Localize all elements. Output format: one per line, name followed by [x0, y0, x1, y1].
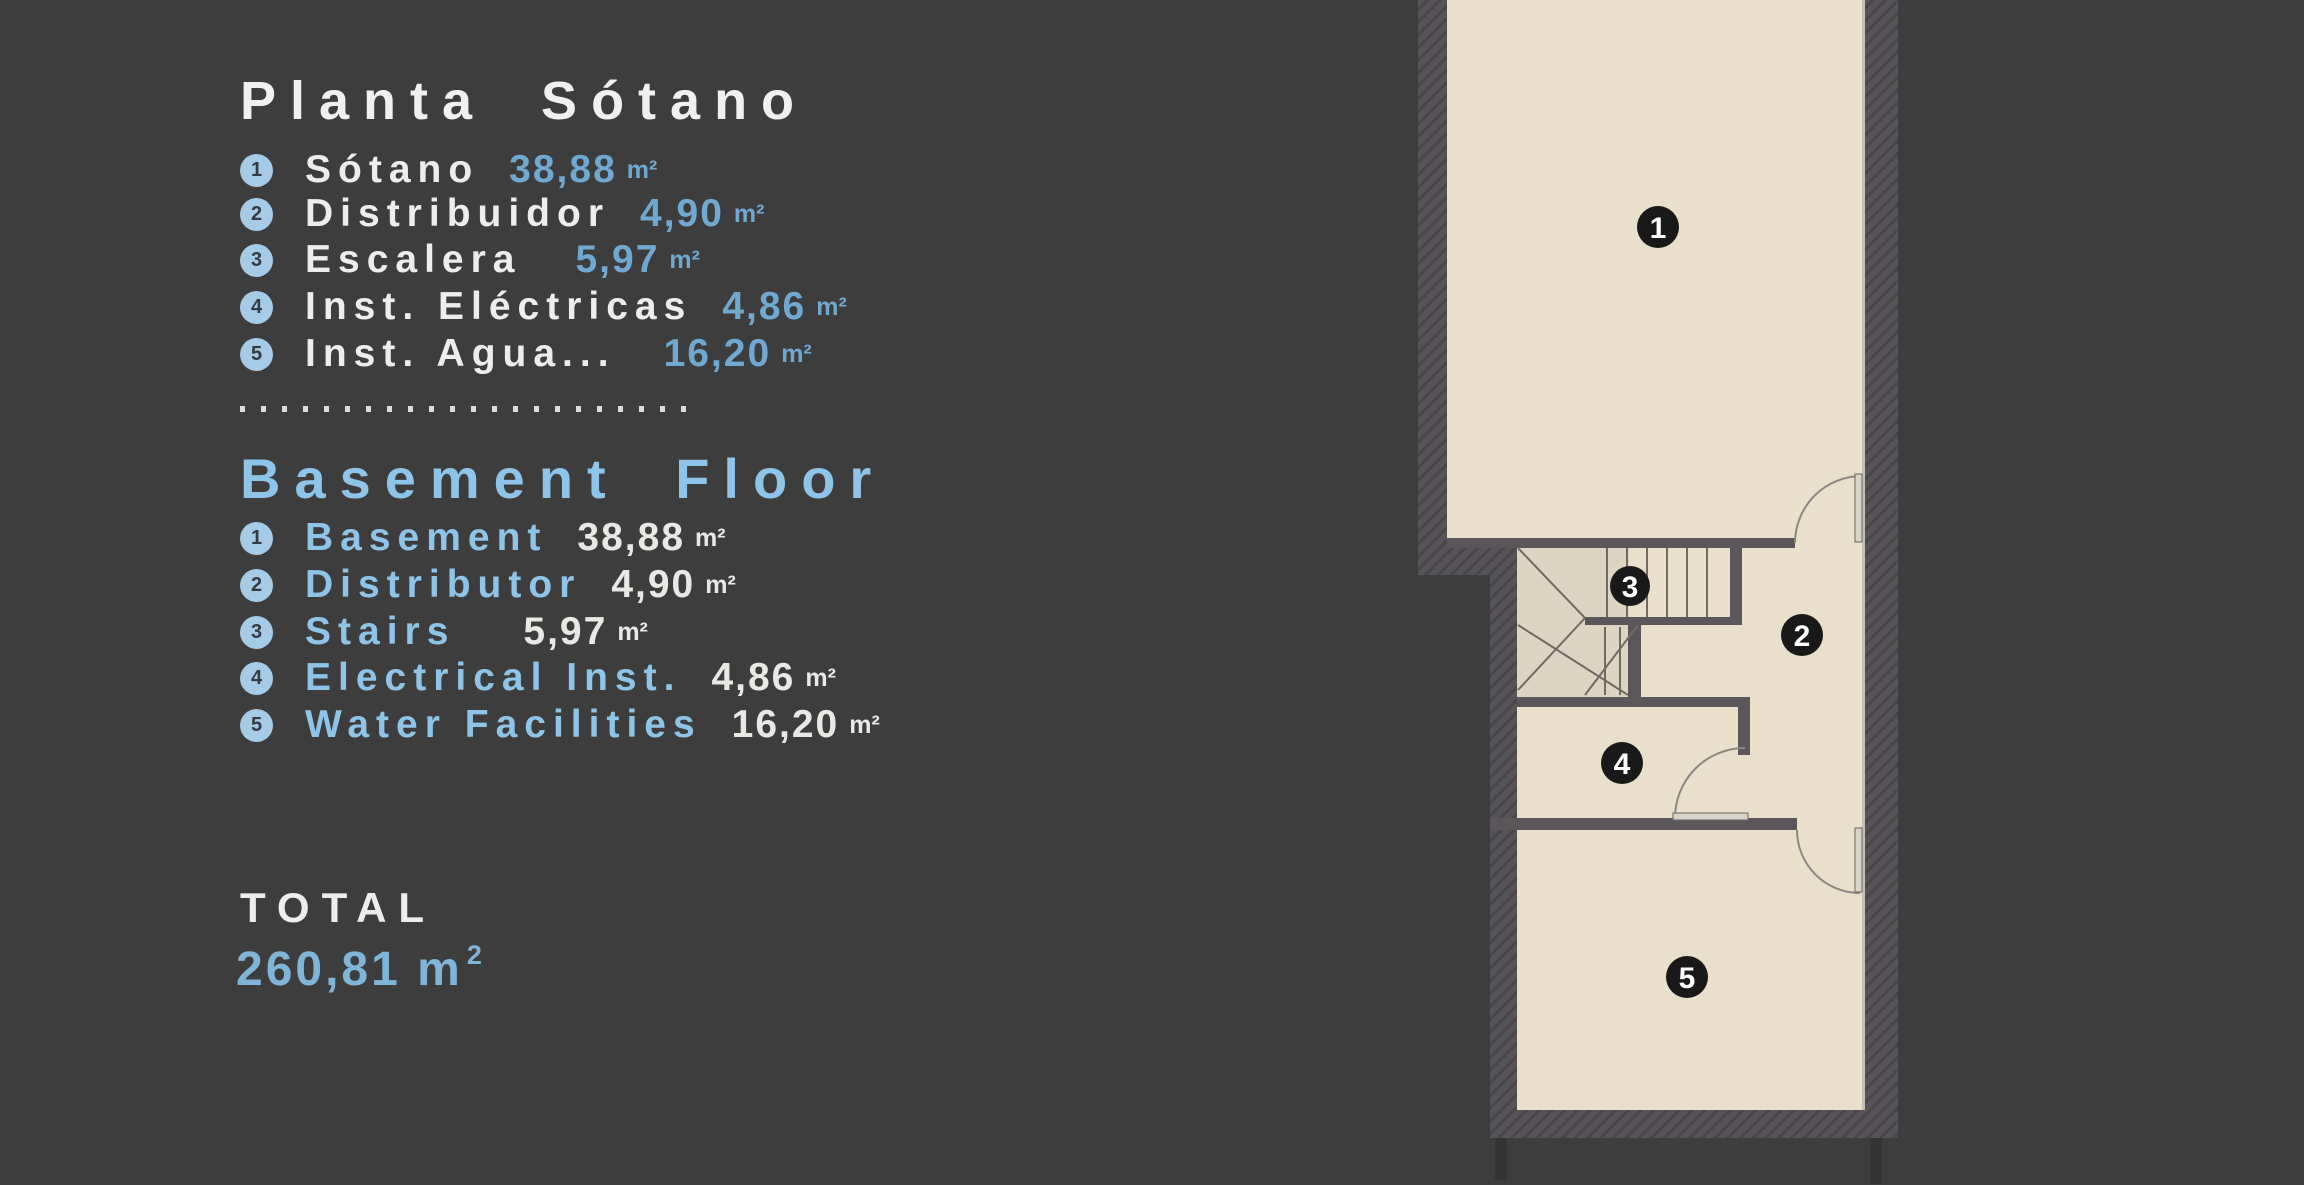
area-unit: m²	[849, 711, 880, 740]
area-unit: m²	[705, 571, 736, 600]
area-unit: m²	[816, 293, 847, 322]
area-unit: m²	[805, 664, 836, 693]
plan-badge-2: 2	[1781, 614, 1823, 656]
room-number-badge: 1	[240, 154, 273, 187]
legend-row-es-1: 1 Sótano 38,88 m²	[240, 148, 657, 192]
room-label: Distributor	[305, 563, 581, 607]
room-label: Stairs	[305, 610, 455, 654]
area-unit: m²	[734, 200, 765, 229]
room-number-badge: 3	[240, 616, 273, 649]
room-area-value: 16,20	[732, 703, 840, 747]
area-unit: m²	[695, 524, 726, 553]
basement-floor-plan: 1 2 3 4 5	[1400, 0, 1920, 1185]
room-area-value: 5,97	[523, 610, 607, 654]
plan-badge-number: 3	[1622, 571, 1639, 604]
floor-plan-page: Planta Sótano 1 Sótano 38,88 m² 2 Distri…	[0, 0, 2304, 1185]
room-area-value: 5,97	[575, 238, 659, 282]
legend-row-en-1: 1 Basement 38,88 m²	[240, 516, 726, 560]
room-label: Basement	[305, 516, 547, 560]
room-label: Inst. Eléctricas	[305, 285, 692, 329]
room-number-badge: 4	[240, 662, 273, 695]
room-label: Sótano	[305, 148, 479, 192]
plan-badge-4: 4	[1601, 742, 1643, 784]
room-label: Distribuidor	[305, 192, 610, 236]
legend-row-en-2: 2 Distributor 4,90 m²	[240, 563, 736, 607]
room-number-badge: 2	[240, 198, 273, 231]
door-sill-room4	[1673, 813, 1748, 820]
room-number-badge: 2	[240, 569, 273, 602]
room-area-value: 38,88	[509, 148, 617, 192]
plan-badge-number: 5	[1679, 962, 1696, 995]
room-label: Electrical Inst.	[305, 656, 681, 700]
room-number-badge: 5	[240, 709, 273, 742]
total-label: TOTAL	[240, 884, 436, 932]
room-number-badge: 3	[240, 244, 273, 277]
legend-row-es-2: 2 Distribuidor 4,90 m²	[240, 192, 764, 236]
total-area-number: 260,81	[236, 943, 401, 996]
plan-badge-number: 2	[1794, 620, 1811, 653]
legend-row-en-5: 5 Water Facilities 16,20 m²	[240, 703, 880, 747]
total-area-unit: m	[417, 943, 463, 996]
plan-badge-3: 3	[1610, 566, 1650, 606]
room-area-value: 4,86	[722, 285, 806, 329]
room-label: Escalera	[305, 238, 521, 282]
spanish-section-title: Planta Sótano	[240, 70, 808, 132]
legend-row-es-3: 3 Escalera 5,97 m²	[240, 238, 700, 282]
floor-plan-svg: 1 2 3 4 5	[1400, 0, 1920, 1185]
plan-badge-number: 4	[1614, 748, 1631, 781]
area-unit: m²	[781, 340, 812, 369]
plan-badge-1: 1	[1637, 206, 1679, 248]
door-leaf-room1	[1855, 474, 1862, 542]
legend-row-en-3: 3 Stairs 5,97 m²	[240, 610, 648, 654]
door-leaf-room5	[1855, 828, 1862, 892]
room-area-value: 4,86	[711, 656, 795, 700]
room-area-value: 16,20	[664, 332, 772, 376]
room-label: Water Facilities	[305, 703, 702, 747]
english-section-title: Basement Floor	[240, 446, 885, 511]
legend-row-es-5: 5 Inst. Agua... 16,20 m²	[240, 332, 812, 376]
area-unit: m²	[627, 156, 658, 185]
legend-row-en-4: 4 Electrical Inst. 4,86 m²	[240, 656, 836, 700]
room-area-value: 38,88	[577, 516, 685, 560]
room-area-value: 4,90	[640, 192, 724, 236]
room-number-badge: 1	[240, 522, 273, 555]
plan-badge-number: 1	[1650, 212, 1667, 245]
room-area-value: 4,90	[611, 563, 695, 607]
total-value: 260,81 m2	[236, 942, 481, 997]
legend-row-es-4: 4 Inst. Eléctricas 4,86 m²	[240, 285, 847, 329]
room-number-badge: 5	[240, 338, 273, 371]
room-label: Inst. Agua...	[305, 332, 616, 376]
dotted-divider	[240, 406, 692, 412]
area-unit: m²	[617, 618, 648, 647]
plan-badge-5: 5	[1666, 956, 1708, 998]
total-area-unit-exponent: 2	[467, 940, 485, 970]
room-number-badge: 4	[240, 291, 273, 324]
area-unit: m²	[669, 246, 700, 275]
